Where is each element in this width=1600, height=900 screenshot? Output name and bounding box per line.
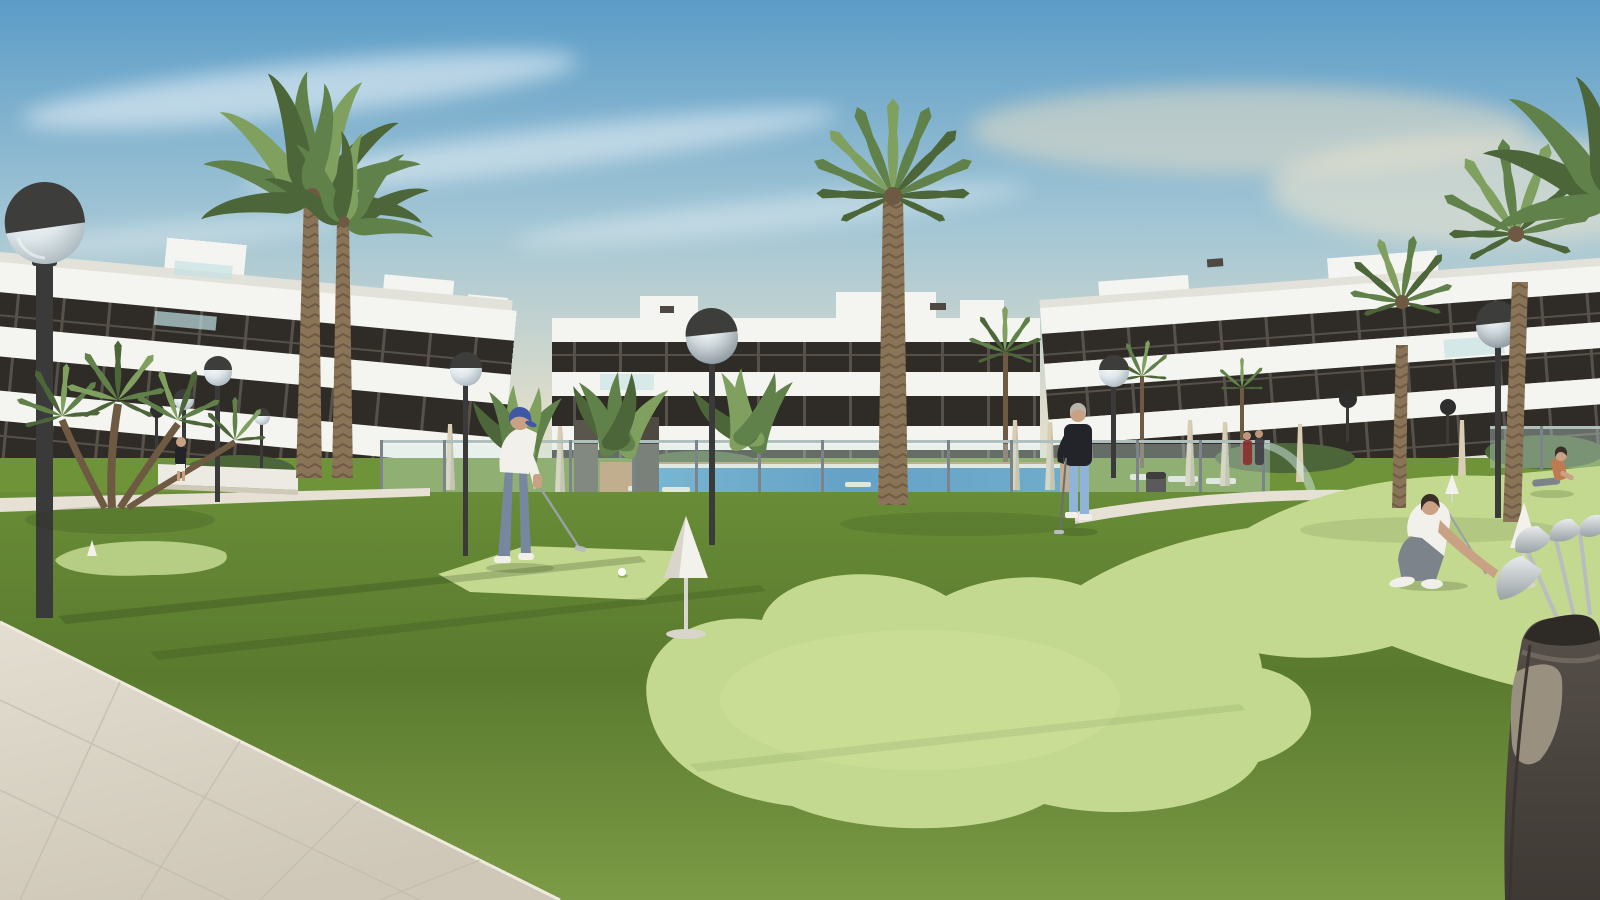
render-scene [0, 0, 1600, 900]
scene-canvas [0, 0, 1600, 900]
